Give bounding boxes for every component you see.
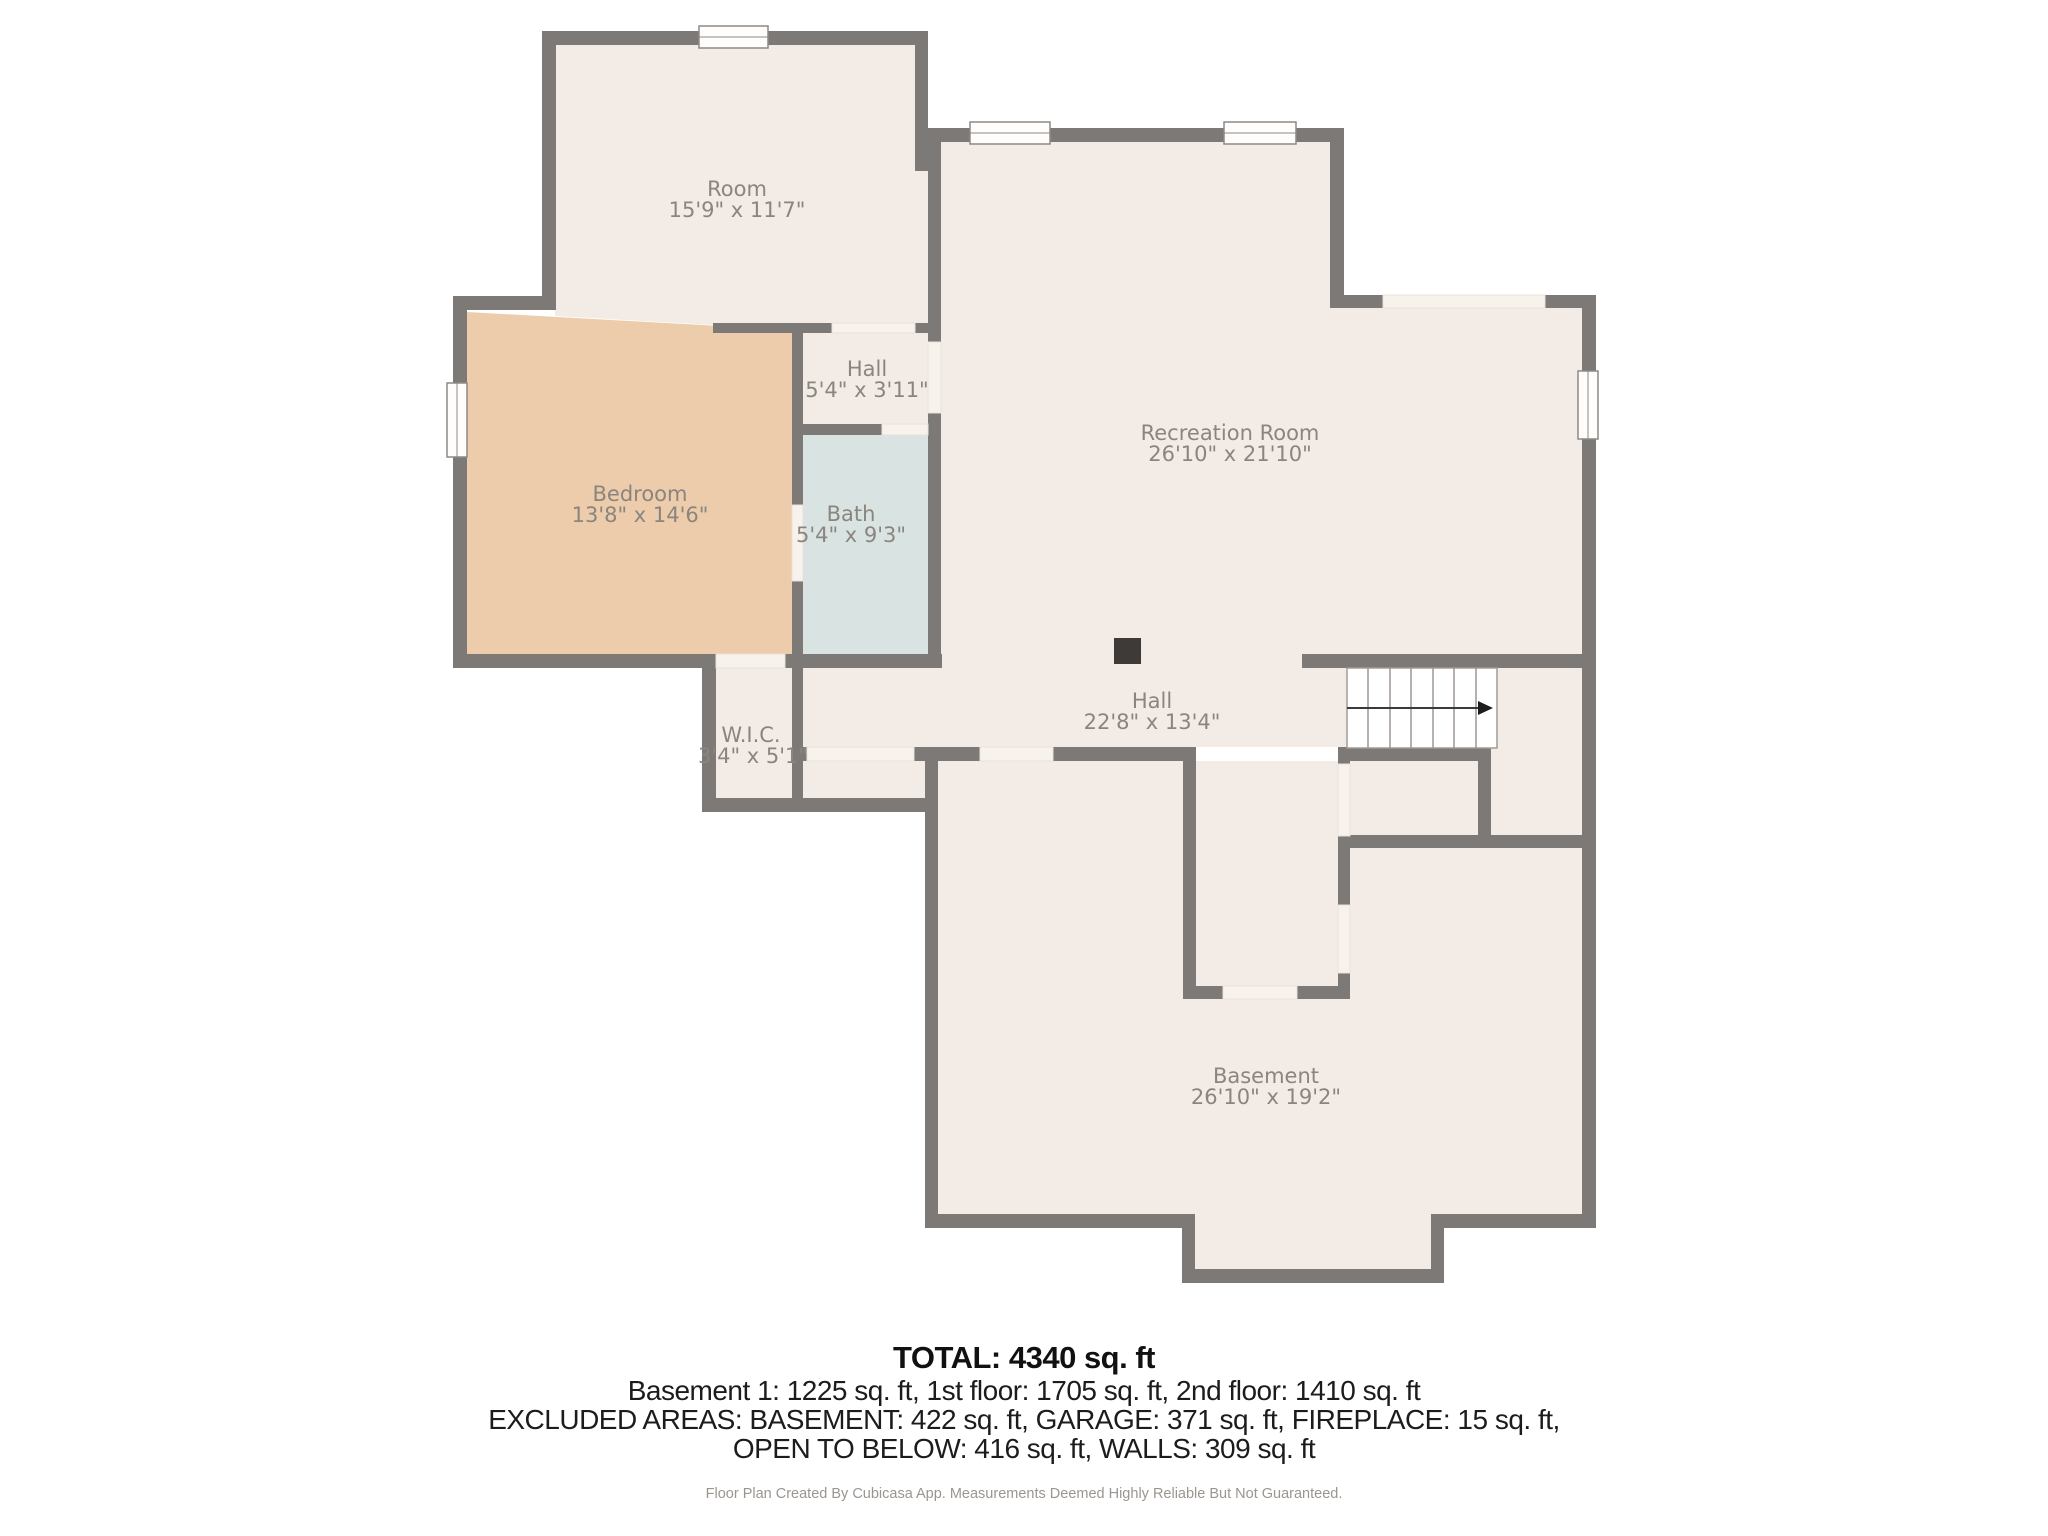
room-dims-bedroom: 13'8" x 14'6" — [572, 503, 709, 527]
summary-block: TOTAL: 4340 sq. ft Basement 1: 1225 sq. … — [488, 1340, 1560, 1502]
door-gap — [1338, 905, 1350, 973]
room-floor-alcove — [803, 761, 925, 798]
door-gap — [1338, 764, 1350, 836]
room-dims-wic: 3'4" x 5'1" — [698, 744, 808, 768]
room-floor-stair-landing — [1491, 668, 1582, 835]
room-floor-recreation-stepout — [1330, 308, 1582, 654]
room-floor-understair-closet — [1350, 761, 1478, 835]
door-gap — [832, 323, 915, 333]
room-dims-room: 15'9" x 11'7" — [669, 198, 806, 222]
door-gap — [980, 747, 1053, 761]
floor-plan-canvas: Room 15'9" x 11'7" Hall 5'4" x 3'11" Bed… — [0, 0, 2048, 1536]
window-icon — [447, 383, 467, 457]
room-floor-pocket — [1196, 761, 1338, 986]
summary-excluded-2: OPEN TO BELOW: 416 sq. ft, WALLS: 309 sq… — [733, 1433, 1316, 1464]
room-dims-basement: 26'10" x 19'2" — [1191, 1085, 1341, 1109]
door-gap — [882, 424, 928, 435]
window-icon — [970, 122, 1050, 144]
door-gap — [1223, 986, 1297, 999]
room-dims-hall-upper: 5'4" x 3'11" — [805, 378, 928, 402]
door-gap — [716, 654, 785, 668]
door-gap — [928, 342, 941, 413]
window-icon — [1578, 371, 1598, 439]
window-icon — [1224, 122, 1296, 144]
floor-plan-page: Room 15'9" x 11'7" Hall 5'4" x 3'11" Bed… — [0, 0, 2048, 1536]
room-dims-hall-lower: 22'8" x 13'4" — [1084, 710, 1221, 734]
summary-excluded-1: EXCLUDED AREAS: BASEMENT: 422 sq. ft, GA… — [488, 1404, 1560, 1435]
door-gap — [807, 747, 914, 761]
summary-floors: Basement 1: 1225 sq. ft, 1st floor: 1705… — [628, 1375, 1421, 1406]
room-dims-recreation: 26'10" x 21'10" — [1148, 442, 1312, 466]
room-floor-recreation — [941, 142, 1330, 654]
staircase — [1347, 668, 1497, 748]
room-dims-bath: 5'4" x 9'3" — [796, 523, 906, 547]
window-icon — [699, 26, 768, 48]
support-column — [1114, 638, 1141, 664]
footer-credit: Floor Plan Created By Cubicasa App. Meas… — [706, 1486, 1343, 1502]
summary-total: TOTAL: 4340 sq. ft — [893, 1340, 1155, 1375]
door-gap — [1383, 295, 1545, 308]
